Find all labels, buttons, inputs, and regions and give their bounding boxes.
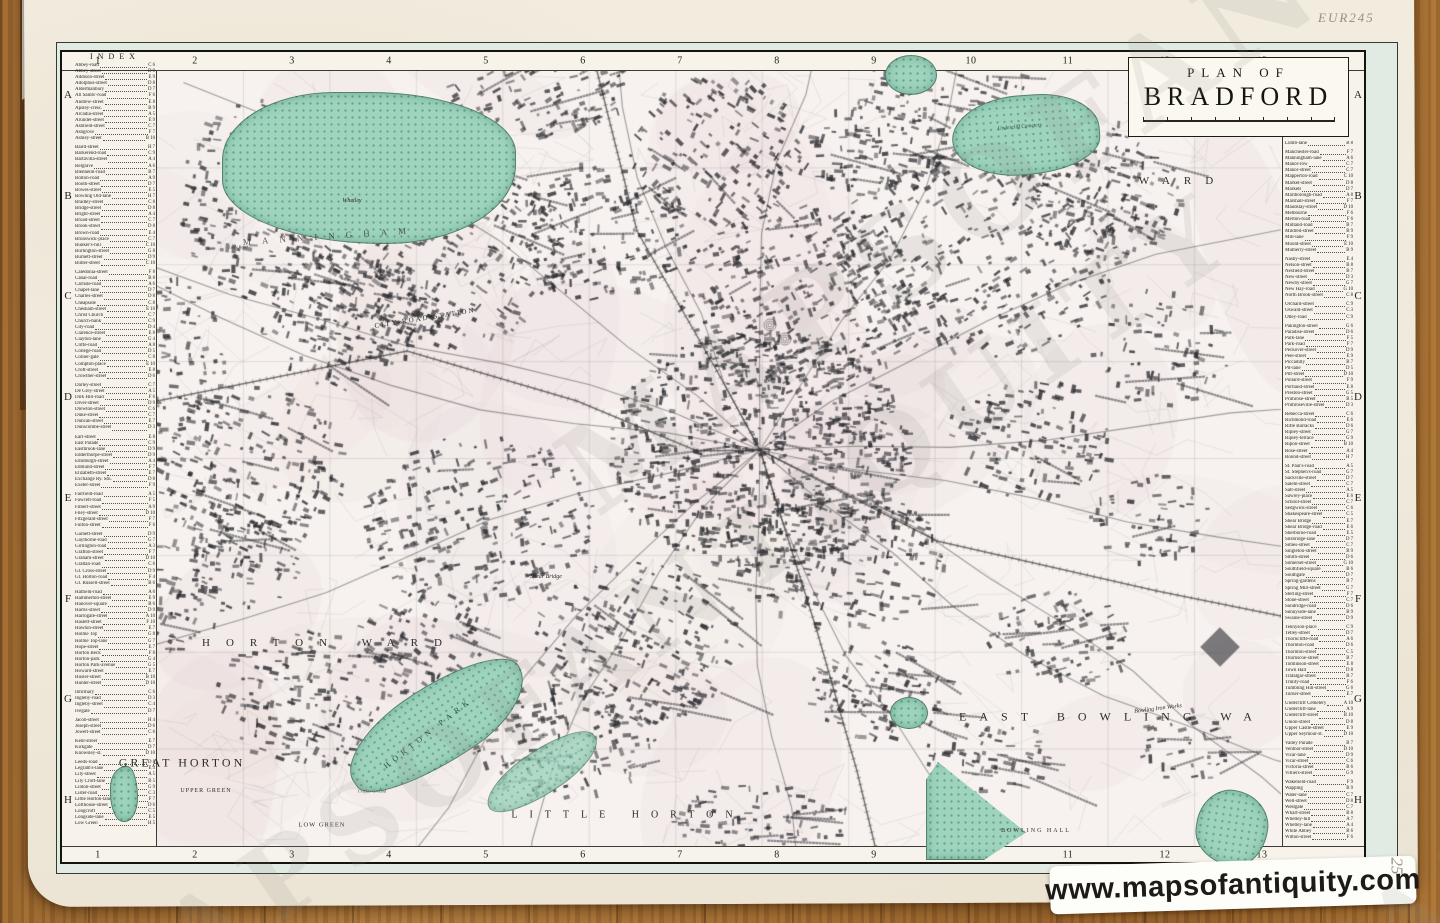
index-group-J: Jacob-streetH 4Joseph-streetD 6Jowett-st… <box>75 718 155 736</box>
title-cartouche: PLAN OF BRADFORD <box>1128 57 1349 137</box>
index-entry: Low GreenH 5 <box>75 821 155 827</box>
grid-letter: B <box>1354 190 1361 202</box>
index-group-P: Pakington-streetG 6Paradise-streetD 6Par… <box>1285 324 1353 409</box>
grid-number: 1 <box>95 850 101 861</box>
index-entry: Villiers-streetG 9 <box>1285 771 1353 777</box>
grid-letter: G <box>1354 693 1362 705</box>
map-label: BOWLING HALL <box>1001 828 1071 834</box>
index-group-I: InfirmaryC 6Ingleby-roadD 3Ingleby-stree… <box>75 690 155 714</box>
index-entry: Ashley-streetB 10 <box>75 136 155 142</box>
pencil-catalog-note: EUR245 <box>1318 10 1375 26</box>
grid-number: 9 <box>871 850 877 861</box>
map-label: Shear Bridge <box>530 574 562 580</box>
scale-bar <box>1143 120 1335 122</box>
map-title-line1: PLAN OF <box>1129 65 1348 81</box>
grid-letter: B <box>64 190 71 202</box>
index-group-E: Earl-streetE 8East ParadeC 9Eastbrook-la… <box>75 435 155 490</box>
grid-number: 4 <box>386 56 392 67</box>
index-entry: Butler-streetC 10 <box>75 261 155 267</box>
grid-number: 12 <box>1160 850 1171 861</box>
index-entry: Upper Seymour-st.D 10 <box>1285 732 1353 738</box>
map-label: Lady Royd <box>228 245 247 250</box>
index-entry: Swaine-streetD 9 <box>1285 616 1353 622</box>
index-group-C: Caledonia-streetF 8Canal-roadB 8Carlisle… <box>75 270 155 380</box>
map-label: UPPER GREEN <box>180 788 231 794</box>
index-entry: Wilton-streetF 6 <box>1285 835 1353 841</box>
park-area-top-small <box>885 55 937 95</box>
index-entry: Primroseville-streetD 3 <box>1285 403 1353 409</box>
grid-number: 3 <box>289 56 295 67</box>
map-label: LITTLE HORTON <box>511 810 744 821</box>
grid-number: 6 <box>580 56 586 67</box>
grid-number: 11 <box>1063 56 1074 67</box>
index-group-M: Manchester-roadF 7Manningham-laneA 6Mano… <box>1285 150 1353 254</box>
index-group-L: Lumb-laneB 8 <box>1285 141 1353 147</box>
grid-number: 3 <box>289 850 295 861</box>
grid-letter: F <box>65 593 71 605</box>
grid-number: 7 <box>677 56 683 67</box>
grid-letter: C <box>1354 290 1361 302</box>
index-group-S: St. Paul's-roadA 5St. Stephen's-roadG 7S… <box>1285 464 1353 622</box>
index-group-B: Baird-streetH 7Barkerend-roadC 9Bartavil… <box>75 145 155 267</box>
grid-number: 2 <box>192 56 198 67</box>
grid-number: 6 <box>580 850 586 861</box>
index-entry: IvegateD 7 <box>75 709 155 715</box>
grid-number: 7 <box>677 850 683 861</box>
map-label: EAST BOWLING WA <box>959 710 1265 725</box>
seller-url-text: www.mapsofantiquity.com <box>1045 863 1421 907</box>
index-group-H: Hatfield-roadA 6Hammerton-streetE 9Hanov… <box>75 590 155 688</box>
grid-number: 4 <box>386 850 392 861</box>
grid-letter: D <box>1354 391 1362 403</box>
map-title-line2: BRADFORD <box>1129 82 1348 112</box>
index-group-T: Tennyson-placeC 9Tetley-streetD 7Thorncl… <box>1285 625 1353 698</box>
index-entry: Turner-streetE 7 <box>1285 692 1353 698</box>
index-group-N: Nasby-streetE 4Nelson-streetB 8Nesfield-… <box>1285 257 1353 300</box>
grid-number: 2 <box>192 850 198 861</box>
map-label: Whetley <box>342 198 361 204</box>
park-area-lister-park <box>222 92 516 244</box>
map-label: HORTON WARD <box>202 637 458 649</box>
seller-url-sticker: www.mapsofantiquity.com <box>1049 856 1416 915</box>
map-label: Cricket Ground <box>358 789 386 794</box>
grid-number: 5 <box>483 56 489 67</box>
grid-number: 8 <box>774 850 780 861</box>
grid-number: 8 <box>774 56 780 67</box>
index-entry: Exeter-streetF 9 <box>75 483 155 489</box>
grid-letter: H <box>1354 794 1362 806</box>
index-group-K: Kent-streetE 7KirkgateD 7Knowsley-st.D 1… <box>75 739 155 757</box>
index-entry: Round-streetH 7 <box>1285 455 1353 461</box>
grid-number: 11 <box>1063 850 1074 861</box>
grid-letter: E <box>65 492 72 504</box>
map-label: WARD <box>1139 175 1227 187</box>
index-group-O: Orchard-streetC 9Oswald-streetC 3Otley-r… <box>1285 302 1353 320</box>
grid-letter: D <box>64 391 72 403</box>
index-entry: Dunscombe-streetD 3 <box>75 425 155 431</box>
index-group-G: Garnett-streetD 9Gaythorne-roadG 7Girlin… <box>75 532 155 587</box>
map-label: GREAT HORTON <box>119 756 246 771</box>
street-index-right: Lumb-laneB 8Manchester-roadF 7Manningham… <box>1285 141 1353 841</box>
grid-letter: A <box>64 89 72 101</box>
index-entry: Crowther-streetD 6 <box>75 374 155 380</box>
grid-letter: F <box>1355 593 1361 605</box>
map-label: LOW GREEN <box>299 822 346 829</box>
photo-of-antique-map: 12345678910111213 12345678910111213 ABCD… <box>0 0 1440 923</box>
grid-letter: E <box>1355 492 1362 504</box>
index-group-W: Wakefield-roadF 9WappingB 9Water-laneC 7… <box>1285 780 1353 841</box>
index-entry: Lumb-laneB 8 <box>1285 141 1353 147</box>
grid-letter: H <box>64 794 72 806</box>
street-index-left: INDEX Abbey-roadC 6Abbey-streetD 9Addiso… <box>75 52 155 846</box>
index-entry: North Brook-streetC 8 <box>1285 293 1353 299</box>
grid-letter: C <box>64 290 71 302</box>
grid-letter: G <box>64 693 72 705</box>
grid-number: 5 <box>483 850 489 861</box>
index-group-A: Abbey-roadC 6Abbey-streetD 9Addison-stre… <box>75 63 155 142</box>
park-area-mid-small <box>890 697 928 729</box>
index-group-U: Undercliff CemeteryA 10Undercliff-laneA … <box>1285 701 1353 738</box>
index-title: INDEX <box>75 52 155 61</box>
index-entry: Mulberry-streetB 9 <box>1285 248 1353 254</box>
index-group-F: Fairfield-roadA 5Fawcett-roadF 5Filbert-… <box>75 492 155 529</box>
index-group-D: Darley-streetC 7De Grey-streetA 5Dirk Hi… <box>75 383 155 432</box>
index-entry: Hunter-streetD 10 <box>75 681 155 687</box>
grid-number: 10 <box>966 56 977 67</box>
frame-rule-bottom <box>62 846 1364 847</box>
grid-number: 9 <box>871 56 877 67</box>
index-entry: Jowett-streetC 6 <box>75 730 155 736</box>
index-divider-right <box>1282 71 1283 846</box>
index-group-R: Rebecca-streetC 6Richmond-roadE 6Rifle B… <box>1285 412 1353 461</box>
index-group-V: Valley ParadeB 7Ventnor-streetD 10Vicar-… <box>1285 741 1353 778</box>
index-entry: Fulton-streetF 6 <box>75 523 155 529</box>
grid-letter: A <box>1354 89 1362 101</box>
index-entry: Gt. Russell-streetB 6 <box>75 581 155 587</box>
park-area-left-sliver <box>110 766 138 822</box>
pencil-page-number: 25 <box>1387 858 1407 875</box>
index-entry: Otley-roadC 9 <box>1285 315 1353 321</box>
